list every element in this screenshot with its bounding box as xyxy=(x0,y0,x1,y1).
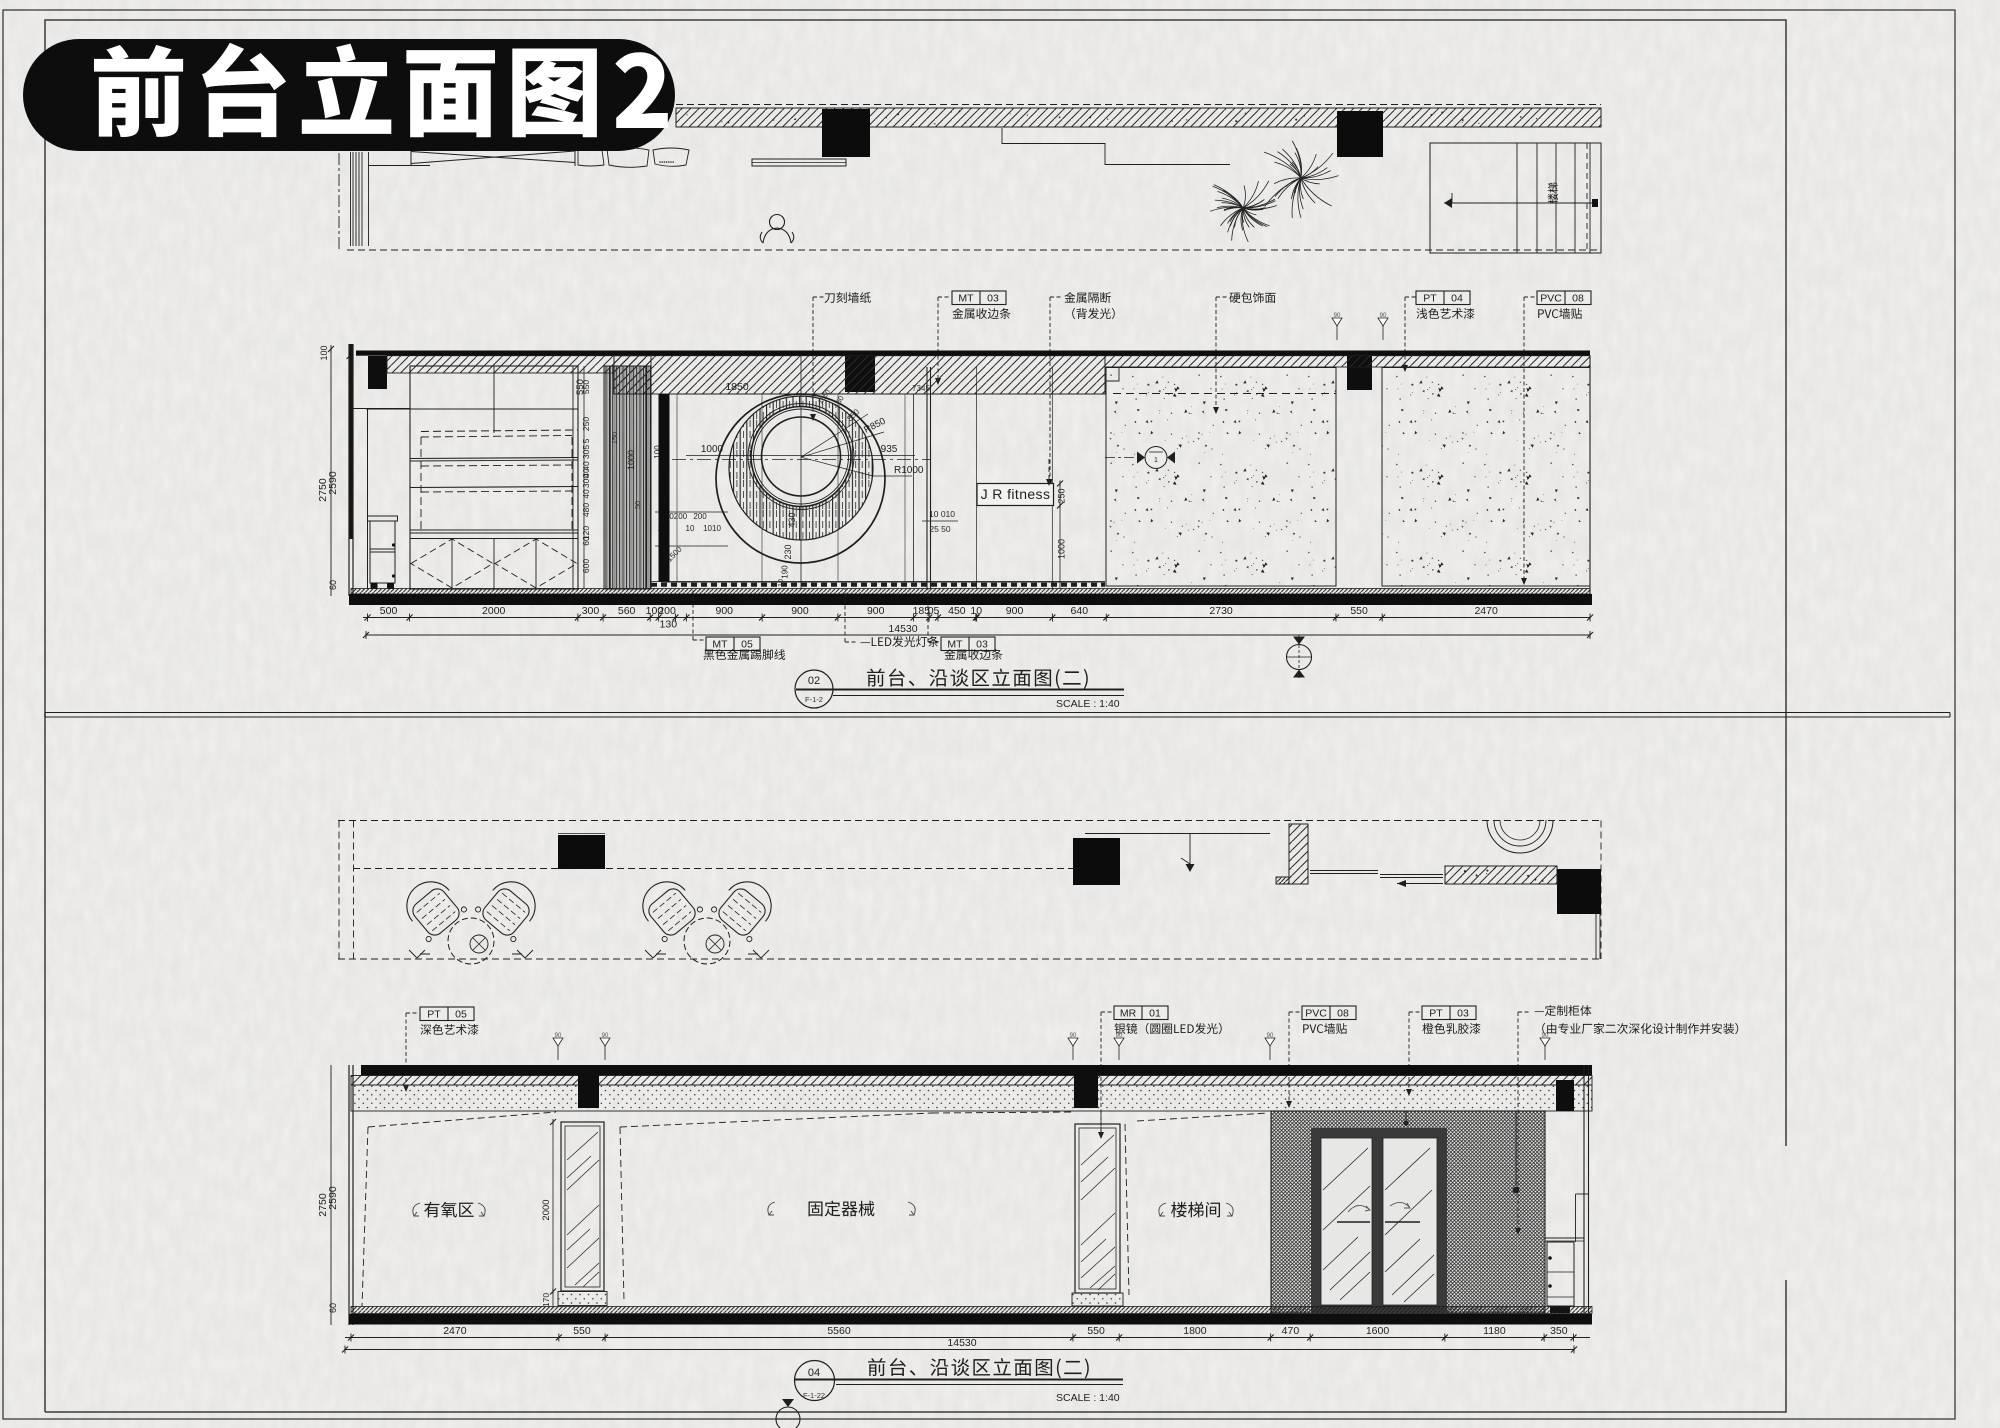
svg-text:04: 04 xyxy=(808,1367,820,1379)
svg-text:1180: 1180 xyxy=(1483,1325,1506,1337)
svg-text:SCALE : 1:40: SCALE : 1:40 xyxy=(1056,1392,1120,1404)
svg-text:60: 60 xyxy=(581,536,591,546)
svg-text:130: 130 xyxy=(660,619,678,631)
svg-text:900: 900 xyxy=(1006,605,1024,617)
svg-text:640: 640 xyxy=(1071,605,1089,617)
svg-text:2470: 2470 xyxy=(1474,605,1498,617)
svg-text:90: 90 xyxy=(602,1033,609,1039)
svg-text:90: 90 xyxy=(1116,1033,1123,1039)
svg-text:350: 350 xyxy=(1550,1325,1568,1337)
svg-text:25 50: 25 50 xyxy=(929,524,951,534)
svg-text:PVC: PVC xyxy=(1540,292,1562,304)
svg-text:480: 480 xyxy=(581,503,591,517)
svg-text:MR: MR xyxy=(1120,1007,1137,1019)
svg-text:470: 470 xyxy=(1282,1325,1300,1337)
svg-text:100: 100 xyxy=(319,345,329,360)
svg-text:190: 190 xyxy=(781,565,790,579)
svg-text:170: 170 xyxy=(541,1293,551,1307)
svg-text:05: 05 xyxy=(741,638,753,650)
svg-text:40: 40 xyxy=(581,489,591,499)
svg-text:250: 250 xyxy=(581,417,591,431)
svg-text:90: 90 xyxy=(1070,1033,1077,1039)
svg-text:04: 04 xyxy=(1451,292,1463,304)
svg-text:05: 05 xyxy=(928,605,940,617)
svg-text:02: 02 xyxy=(808,675,820,687)
svg-text:2590: 2590 xyxy=(327,471,339,495)
svg-text:935: 935 xyxy=(881,444,898,455)
svg-text:2590: 2590 xyxy=(327,1186,339,1210)
svg-text:305: 305 xyxy=(581,445,591,459)
svg-text:08: 08 xyxy=(1572,292,1584,304)
svg-text:1: 1 xyxy=(1154,457,1158,464)
svg-text:5560: 5560 xyxy=(827,1325,851,1337)
svg-text:90: 90 xyxy=(1380,313,1387,319)
svg-text:900: 900 xyxy=(867,605,885,617)
svg-text:90: 90 xyxy=(555,1033,562,1039)
svg-text:F-1-2: F-1-2 xyxy=(805,695,823,704)
svg-text:2470: 2470 xyxy=(443,1325,467,1337)
svg-text:60: 60 xyxy=(328,1303,338,1313)
svg-text:10: 10 xyxy=(970,605,982,617)
svg-text:250: 250 xyxy=(1057,488,1067,503)
svg-text:MT: MT xyxy=(947,638,963,650)
svg-text:90: 90 xyxy=(1542,1033,1549,1039)
svg-text:430: 430 xyxy=(787,512,797,527)
svg-text:1010: 1010 xyxy=(703,524,721,533)
svg-text:560: 560 xyxy=(618,605,636,617)
svg-text:J R fitness: J R fitness xyxy=(981,486,1051,502)
svg-text:900: 900 xyxy=(715,605,733,617)
svg-text:150: 150 xyxy=(610,432,619,445)
svg-text:1000: 1000 xyxy=(701,444,724,455)
svg-text:08: 08 xyxy=(1337,1007,1349,1019)
svg-text:200: 200 xyxy=(658,605,676,617)
svg-text:2730: 2730 xyxy=(1209,605,1233,617)
svg-text:R1000: R1000 xyxy=(894,465,924,476)
svg-text:550: 550 xyxy=(581,380,591,394)
svg-text:05: 05 xyxy=(455,1008,467,1020)
svg-text:1850: 1850 xyxy=(725,381,749,393)
svg-text:1600: 1600 xyxy=(1366,1325,1390,1337)
svg-text:10: 10 xyxy=(778,579,785,587)
svg-text:03: 03 xyxy=(1457,1007,1469,1019)
svg-text:900: 900 xyxy=(791,605,809,617)
svg-text:450: 450 xyxy=(948,605,966,617)
svg-text:PT: PT xyxy=(1429,1007,1443,1019)
svg-text:600: 600 xyxy=(581,559,591,573)
svg-text:500: 500 xyxy=(380,605,398,617)
svg-text:90: 90 xyxy=(1267,1033,1274,1039)
svg-text:50: 50 xyxy=(633,501,642,509)
svg-text:03: 03 xyxy=(976,638,988,650)
svg-text:PVC: PVC xyxy=(1305,1007,1327,1019)
svg-text:550: 550 xyxy=(1350,605,1368,617)
svg-text:7345: 7345 xyxy=(912,384,930,393)
svg-text:14530: 14530 xyxy=(947,1337,976,1349)
svg-text:PT: PT xyxy=(427,1008,441,1020)
svg-text:5: 5 xyxy=(581,438,591,443)
svg-text:14530: 14530 xyxy=(888,623,917,635)
svg-text:1800: 1800 xyxy=(1183,1325,1207,1337)
svg-text:2000: 2000 xyxy=(482,605,506,617)
svg-text:2000: 2000 xyxy=(541,1199,552,1220)
svg-text:03: 03 xyxy=(987,292,999,304)
svg-text:550: 550 xyxy=(1087,1325,1105,1337)
svg-text:10 010: 10 010 xyxy=(929,509,955,519)
svg-text:300: 300 xyxy=(581,474,591,488)
svg-text:SCALE : 1:40: SCALE : 1:40 xyxy=(1056,698,1120,710)
svg-text:200: 200 xyxy=(693,512,707,521)
svg-text:10: 10 xyxy=(686,524,695,533)
svg-text:1000: 1000 xyxy=(626,450,636,470)
svg-text:MT: MT xyxy=(958,292,974,304)
svg-text:F-1-22: F-1-22 xyxy=(803,1391,825,1400)
svg-text:550: 550 xyxy=(573,1325,591,1337)
svg-text:230: 230 xyxy=(783,544,793,559)
svg-text:90: 90 xyxy=(1334,313,1341,319)
svg-text:60: 60 xyxy=(328,580,338,590)
svg-text:300: 300 xyxy=(582,605,600,617)
svg-text:01: 01 xyxy=(1149,1007,1161,1019)
svg-text:1000: 1000 xyxy=(1057,539,1067,559)
svg-text:PT: PT xyxy=(1423,292,1437,304)
svg-text:MT: MT xyxy=(712,638,728,650)
